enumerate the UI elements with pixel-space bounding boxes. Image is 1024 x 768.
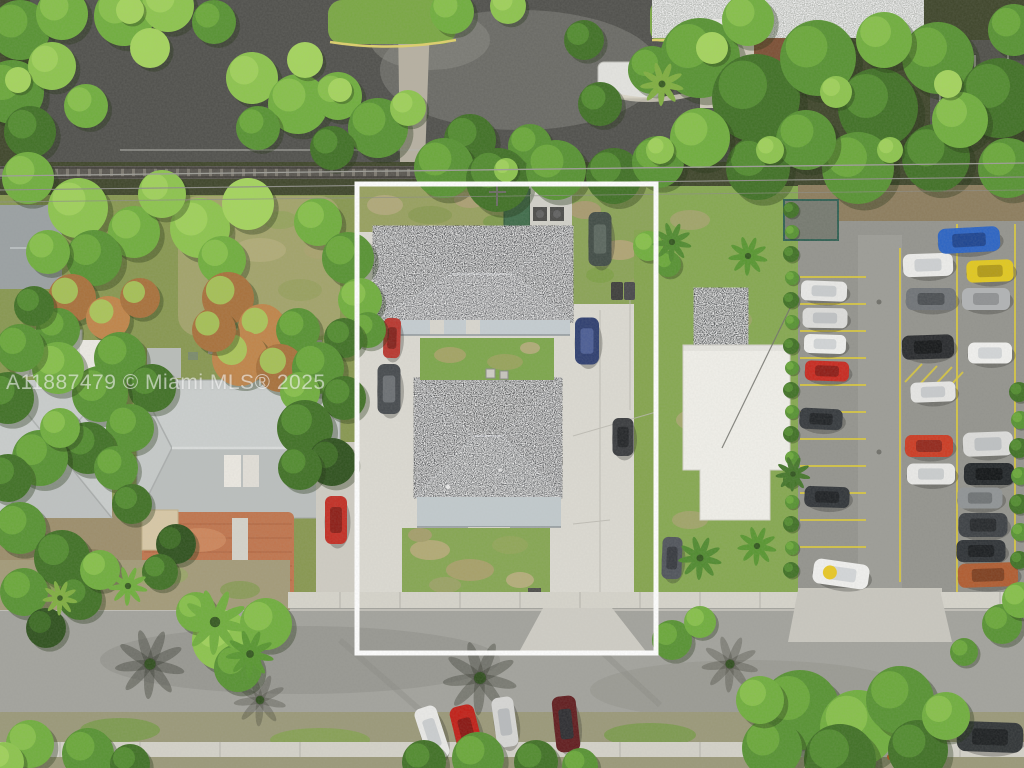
car xyxy=(905,435,957,462)
subject-building-rear-roof xyxy=(373,226,573,322)
car xyxy=(612,418,637,461)
car xyxy=(956,540,1009,567)
mls-watermark: A11887479 © Miami MLS® 2025 xyxy=(6,371,326,395)
car xyxy=(906,288,960,315)
old-roof-section xyxy=(694,288,748,346)
rear-porch-roof xyxy=(396,320,570,335)
car xyxy=(958,513,1011,542)
car xyxy=(325,496,351,549)
car xyxy=(907,464,959,490)
car xyxy=(968,343,1016,369)
car xyxy=(964,463,1018,490)
car xyxy=(588,212,615,271)
car xyxy=(575,318,603,370)
front-porch-roof xyxy=(417,497,561,527)
trash-bins xyxy=(611,282,623,300)
car xyxy=(962,288,1014,315)
car xyxy=(957,488,1006,514)
aerial-photo: A11887479 © Miami MLS® 2025 xyxy=(0,0,1024,768)
car xyxy=(377,364,404,419)
subject-building-front-roof xyxy=(414,378,562,498)
